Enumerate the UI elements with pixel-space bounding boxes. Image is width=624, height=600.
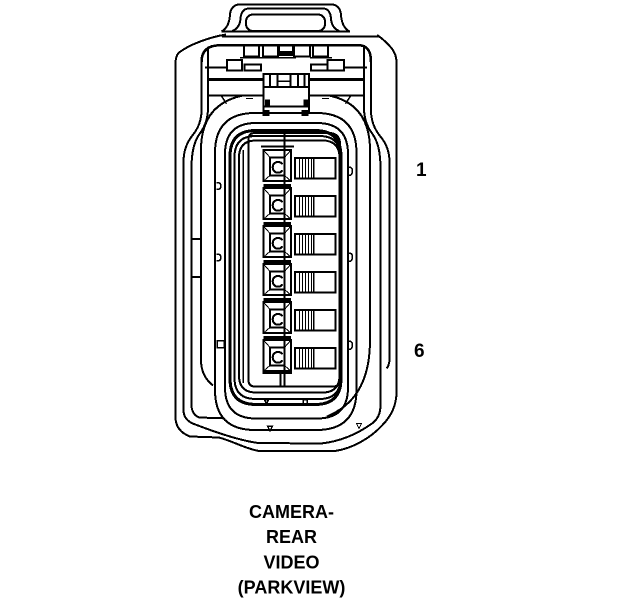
svg-text:(PARKVIEW): (PARKVIEW) bbox=[238, 578, 346, 598]
svg-text:1: 1 bbox=[416, 160, 427, 181]
svg-text:6: 6 bbox=[414, 341, 425, 362]
svg-text:VIDEO: VIDEO bbox=[263, 553, 319, 573]
svg-text:REAR: REAR bbox=[266, 527, 317, 547]
svg-text:CAMERA-: CAMERA- bbox=[249, 502, 334, 522]
